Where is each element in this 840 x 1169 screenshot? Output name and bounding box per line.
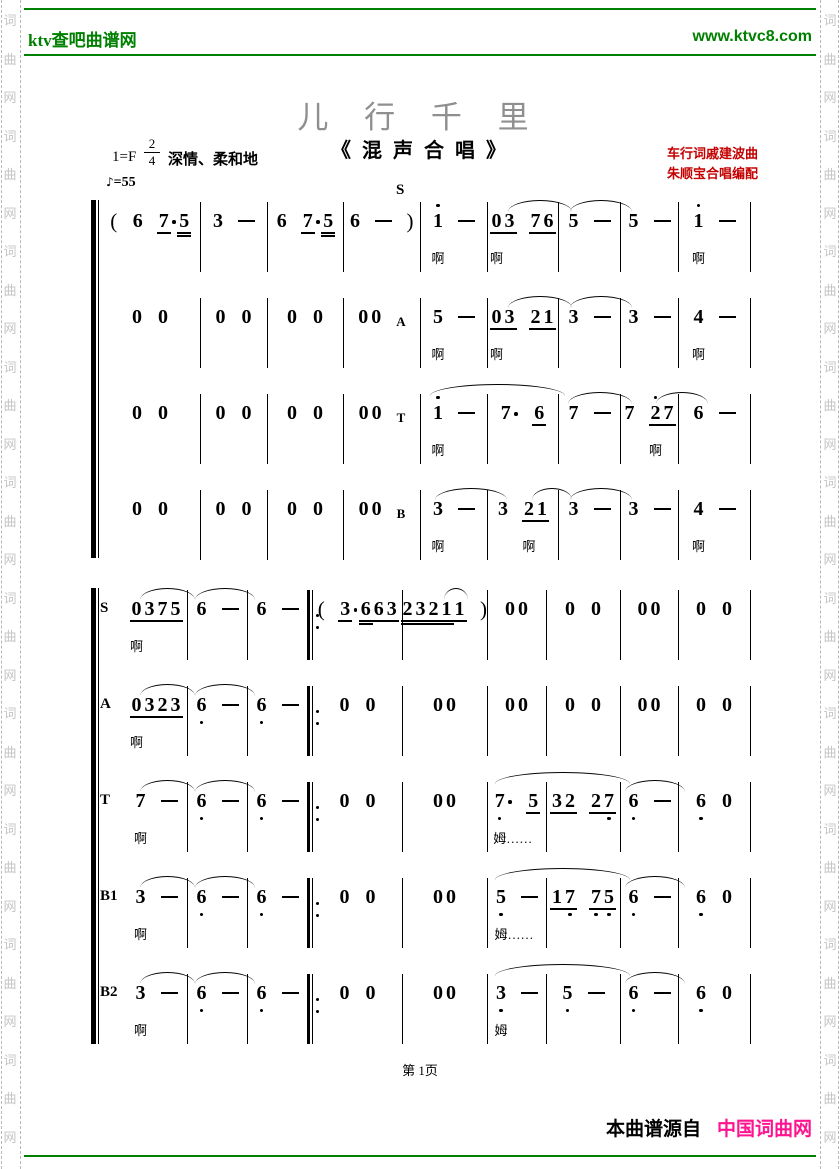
note-token: 7: [603, 790, 615, 812]
lyric: 姆……: [493, 828, 532, 847]
note-group: [718, 306, 736, 318]
measure: 7啊: [125, 778, 187, 874]
measure: 6): [343, 198, 420, 294]
voice-row: B23啊6600003姆5660: [100, 970, 762, 1066]
note-group: [238, 210, 256, 222]
dash-line: [654, 896, 671, 898]
lyric: 啊: [432, 344, 445, 363]
note-group: 6: [195, 790, 208, 812]
dash-line: [594, 508, 611, 510]
note-group: 76: [529, 210, 555, 232]
note-group: [281, 982, 299, 994]
measure: 1啊: [420, 198, 487, 294]
note-group: [160, 886, 178, 898]
header-green-rule: [24, 54, 816, 56]
measure: 0375啊: [125, 586, 187, 682]
note-token: 6: [196, 598, 208, 620]
note-token: 0: [339, 886, 351, 908]
note-group: 75: [301, 210, 335, 232]
underline-sixteenth: [414, 623, 428, 625]
octave-dot-low: [260, 1009, 263, 1012]
note-token: 7: [135, 790, 147, 812]
octave-dot-low: [699, 913, 702, 916]
parenthesis: (: [317, 598, 325, 620]
note-group: [160, 982, 178, 994]
note-token: 3: [135, 886, 147, 908]
measure: 675: [267, 198, 343, 294]
note-group: 6: [695, 982, 708, 1004]
note-group: 6: [195, 886, 208, 908]
watermark-char: 词: [2, 233, 18, 272]
note-token: 0: [650, 694, 662, 716]
note-group: 6: [349, 210, 362, 232]
measure: 60: [678, 970, 750, 1066]
dash-line: [238, 220, 255, 222]
note-group: 00: [357, 306, 383, 328]
measure: 00B: [343, 486, 420, 582]
voice-row: 00000000T1啊767727啊6: [100, 390, 762, 486]
note-group: 0: [721, 886, 734, 908]
note-group: 00: [636, 694, 662, 716]
measure: 5: [558, 198, 620, 294]
measure: 6: [247, 586, 307, 682]
note-group: [718, 210, 736, 222]
note-token: 6: [276, 210, 288, 232]
underline-eighth: [602, 812, 616, 814]
note-token: 5: [562, 982, 574, 1004]
note-group: 0: [721, 694, 734, 716]
note-token: 0: [695, 694, 707, 716]
source-site-link[interactable]: 中国词曲网: [717, 1119, 812, 1140]
underline-eighth: [490, 232, 504, 234]
lyric: 啊: [649, 440, 662, 459]
voice-row: B13啊6600005姆……1775660: [100, 874, 762, 970]
dash-line: [222, 704, 239, 706]
note-group: 0: [564, 694, 577, 716]
underline-eighth: [550, 908, 564, 910]
note-token: 6: [196, 886, 208, 908]
measure: 3姆: [487, 970, 546, 1066]
underline-eighth: [529, 328, 543, 330]
key-signature: 1=F: [112, 149, 136, 166]
note-group: 6: [695, 790, 708, 812]
measure: 00: [313, 682, 402, 778]
note-token: 3: [504, 210, 516, 232]
note-group: 27啊: [649, 402, 675, 424]
note-group: [593, 498, 611, 510]
note-token: 0: [215, 402, 227, 424]
note-group: 0: [721, 790, 734, 812]
system: S(67536756)1啊03啊76551啊00000000A5啊03啊2133…: [100, 198, 762, 582]
note-token: 6: [256, 790, 268, 812]
note-group: 5: [567, 210, 580, 232]
note-token: 0: [564, 694, 576, 716]
note-token: 0: [371, 402, 383, 424]
note-group: [281, 790, 299, 802]
note-token: 0: [370, 306, 382, 328]
note-token: 0: [157, 498, 169, 520]
note-token: 3: [551, 790, 563, 812]
note-token: 0: [365, 694, 377, 716]
underline-eighth: [385, 620, 399, 622]
watermark-char: 曲: [2, 965, 18, 1004]
measure: 00: [200, 390, 267, 486]
note-group: 5啊: [432, 306, 445, 328]
voice-row: T7啊6600007姆……53227660: [100, 778, 762, 874]
note-token: 6: [256, 694, 268, 716]
watermark-char: 网: [2, 1119, 18, 1158]
note-group: 5: [527, 790, 540, 812]
note-token: 6: [256, 982, 268, 1004]
measure: 00: [267, 390, 343, 486]
note-token: 0: [721, 694, 733, 716]
note-group: (: [109, 210, 118, 232]
time-signature-bottom: 4: [144, 153, 160, 169]
note-group: 27: [590, 790, 616, 812]
note-group: [718, 498, 736, 510]
note-token: 0: [157, 306, 169, 328]
octave-dot-high: [697, 204, 700, 207]
right-outer-dashed-rule: [838, 0, 839, 1169]
note-group: 0: [695, 694, 708, 716]
watermark-char: 词: [2, 926, 18, 965]
underline-eighth: [157, 232, 171, 234]
note-group: 3: [627, 498, 640, 520]
underline-eighth: [130, 620, 144, 622]
note-token: 6: [695, 790, 707, 812]
note-group: 4啊: [692, 498, 705, 520]
note-group: [375, 210, 393, 222]
site-name[interactable]: ktv查吧曲谱网: [28, 26, 137, 51]
underline-eighth: [177, 232, 191, 234]
note-group: 3: [627, 306, 640, 328]
note-token: 0: [339, 982, 351, 1004]
song-title: 儿 行 千 里: [0, 92, 840, 137]
measure: 3: [558, 294, 620, 390]
measure: 6: [247, 874, 307, 970]
watermark-char: 词: [2, 580, 18, 619]
note-group: [653, 498, 671, 510]
note-token: 0: [590, 598, 602, 620]
note-token: 0: [432, 886, 444, 908]
note-group: 0: [338, 790, 351, 812]
underline-eighth: [589, 812, 603, 814]
lyric: 啊: [134, 828, 147, 847]
watermark-char: 曲: [822, 849, 838, 888]
note-token: A: [396, 311, 405, 333]
augmentation-dot: [172, 220, 176, 224]
inline-voice-label: A: [396, 306, 406, 333]
note-token: 7: [494, 790, 506, 812]
watermark-char: 网: [822, 1003, 838, 1042]
dash-line: [719, 316, 736, 318]
note-token: 6: [196, 790, 208, 812]
underline-eighth: [338, 620, 352, 622]
augmentation-dot: [316, 220, 320, 224]
note-group: 0: [240, 306, 253, 328]
note-group: 00: [357, 498, 383, 520]
watermark-char: 词: [2, 811, 18, 850]
note-group: 3: [567, 498, 580, 520]
lyric: 啊: [692, 536, 705, 555]
note-token: 0: [721, 598, 733, 620]
measure: 4啊: [678, 294, 750, 390]
source-attribution: 本曲谱源自中国词曲网: [606, 1114, 812, 1141]
note-token: 0: [312, 402, 324, 424]
voice-label: T: [100, 792, 110, 809]
measure: 00: [100, 390, 200, 486]
note-group: 3姆: [495, 982, 508, 1004]
measure: 1啊: [678, 198, 750, 294]
watermark-char: 词: [822, 349, 838, 388]
underline-eighth: [440, 620, 454, 622]
measure: 03啊76: [487, 198, 558, 294]
dash-line: [521, 992, 538, 994]
watermark-char: 曲: [2, 387, 18, 426]
note-group: [587, 982, 605, 994]
barline: [750, 298, 751, 368]
underline-eighth: [372, 620, 386, 622]
voice-row: (67536756)1啊03啊76551啊: [100, 198, 762, 294]
note-group: 0: [338, 982, 351, 1004]
watermark-char: 词: [822, 233, 838, 272]
note-group: 6: [255, 982, 268, 1004]
underline-eighth: [156, 716, 170, 718]
measure: 5姆……: [487, 874, 546, 970]
note-token: 0: [131, 598, 143, 620]
watermark-char: 网: [822, 772, 838, 811]
voice-label: B2: [100, 984, 118, 1001]
note-token: 0: [504, 694, 516, 716]
note-token: 1: [693, 210, 705, 232]
note-token: 0: [432, 790, 444, 812]
watermark-char: 词: [822, 695, 838, 734]
note-group: 00: [432, 982, 458, 1004]
note-group: 17: [551, 886, 577, 908]
note-token: 0: [695, 598, 707, 620]
measure: 0323啊: [125, 682, 187, 778]
note-token: 0: [504, 598, 516, 620]
note-token: 7: [564, 886, 576, 908]
octave-dot-low: [632, 817, 635, 820]
note-group: 6: [255, 790, 268, 812]
note-token: 3: [628, 306, 640, 328]
underline-eighth: [169, 620, 183, 622]
measure: 00: [313, 778, 402, 874]
system-brace: [91, 588, 96, 1044]
note-group: 0: [131, 498, 144, 520]
lyric: 啊: [432, 440, 445, 459]
note-token: 7: [302, 210, 314, 232]
note-token: 2: [428, 598, 440, 620]
note-group: 0: [590, 694, 603, 716]
lyric: 啊: [134, 1020, 147, 1039]
note-group: 0: [214, 306, 227, 328]
watermark-char: 词: [2, 349, 18, 388]
watermark-char: 曲: [822, 41, 838, 80]
watermark-char: 词: [822, 811, 838, 850]
note-group: 00: [432, 790, 458, 812]
note-group: 0: [721, 982, 734, 1004]
note-group: 6: [255, 598, 268, 620]
note-group: [160, 790, 178, 802]
note-group: 6: [533, 402, 546, 424]
note-group: 0: [131, 402, 144, 424]
note-token: 0: [637, 694, 649, 716]
measure: 7: [558, 390, 620, 486]
note-group: 03啊: [490, 210, 516, 232]
lyric: 姆: [495, 1020, 508, 1039]
lyric: 姆……: [495, 924, 534, 943]
watermark-char: 网: [2, 310, 18, 349]
measure: 00: [402, 682, 487, 778]
note-token: 6: [533, 402, 545, 424]
note-group: 0: [312, 498, 325, 520]
measure: 5: [546, 970, 620, 1066]
dash-line: [654, 220, 671, 222]
note-group: 1啊: [432, 402, 445, 424]
credit-arranger: 朱顺宝合唱编配: [667, 164, 758, 184]
credit-lyricist-composer: 车行词戚建波曲: [667, 144, 758, 164]
note-token: 0: [365, 886, 377, 908]
watermark-char: 曲: [2, 849, 18, 888]
note-token: 6: [196, 982, 208, 1004]
source-prefix: 本曲谱源自: [606, 1119, 701, 1140]
barline: [750, 490, 751, 560]
lyric: 啊: [432, 248, 445, 267]
note-token: 7: [663, 402, 675, 424]
lyric: 啊: [523, 536, 536, 555]
octave-dot-low: [499, 913, 502, 916]
note-token: 6: [695, 982, 707, 1004]
note-group: 75: [157, 210, 191, 232]
note-token: 4: [693, 306, 705, 328]
octave-dot-low: [566, 1009, 569, 1012]
note-group: 03啊: [490, 306, 516, 328]
octave-dot-low: [499, 1009, 502, 1012]
note-token: 0: [286, 306, 298, 328]
measure: 3: [200, 198, 267, 294]
note-group: [653, 982, 671, 994]
note-group: 3: [567, 306, 580, 328]
measure: 5: [620, 198, 678, 294]
note-token: 0: [286, 402, 298, 424]
note-group: 6: [195, 694, 208, 716]
site-url[interactable]: www.ktvc8.com: [693, 28, 812, 46]
note-token: 3: [144, 694, 156, 716]
note-group: 00: [504, 598, 530, 620]
underline-eighth: [542, 232, 556, 234]
lyric: 啊: [490, 248, 503, 267]
measure: 00: [267, 294, 343, 390]
note-group: 7啊: [134, 790, 147, 812]
note-group: [458, 402, 476, 414]
watermark-right: 词曲网词曲网词曲网词曲网词曲网词曲网词曲网词曲网词曲网词曲网: [822, 2, 838, 1157]
note-token: 0: [432, 982, 444, 1004]
dash-line: [719, 508, 736, 510]
note-token: 3: [415, 598, 427, 620]
note-group: 0: [338, 886, 351, 908]
watermark-char: 词: [2, 695, 18, 734]
measure: 7姆……5: [487, 778, 546, 874]
system-brace-thin: [98, 200, 99, 558]
measure: 00: [100, 294, 200, 390]
measure: 00: [267, 486, 343, 582]
note-token: 0: [365, 790, 377, 812]
inline-voice-label: B: [396, 498, 406, 525]
measure: 00: [402, 874, 487, 970]
note-token: 6: [256, 886, 268, 908]
note-token: 1: [432, 210, 444, 232]
underline-eighth: [550, 812, 564, 814]
octave-dot-low: [260, 913, 263, 916]
voice-row: 00000000B3啊321啊334啊: [100, 486, 762, 582]
note-token: 0: [215, 498, 227, 520]
note-group: [281, 598, 299, 610]
note-group: 0375啊: [130, 598, 182, 620]
measure: 5啊: [420, 294, 487, 390]
underline-sixteenth: [321, 235, 335, 237]
note-token: 5: [178, 210, 190, 232]
dash-line: [719, 220, 736, 222]
lyric: 啊: [692, 248, 705, 267]
note-token: 0: [637, 598, 649, 620]
watermark-char: 曲: [822, 272, 838, 311]
note-group: 6: [275, 210, 288, 232]
note-token: 0: [445, 982, 457, 1004]
note-token: 6: [693, 402, 705, 424]
voice-row: A0323啊66000000000000: [100, 682, 762, 778]
note-group: 21啊: [523, 498, 549, 520]
note-token: 0: [445, 694, 457, 716]
note-token: 3: [568, 306, 580, 328]
inline-voice-label: T: [396, 402, 406, 429]
augmentation-dot: [508, 800, 512, 804]
system-brace: [91, 200, 96, 558]
note-group: 0: [364, 886, 377, 908]
measure: 1775: [546, 874, 620, 970]
note-group: [458, 498, 476, 510]
lyric: 啊: [130, 732, 143, 751]
note-group: [221, 886, 239, 898]
note-group: [458, 210, 476, 222]
note-group: 0: [214, 402, 227, 424]
octave-dot-low: [200, 817, 203, 820]
watermark-char: 网: [2, 1003, 18, 1042]
watermark-char: 曲: [822, 965, 838, 1004]
barline: [750, 686, 751, 756]
note-group: [653, 886, 671, 898]
dash-line: [594, 220, 611, 222]
dash-line: [458, 220, 475, 222]
note-token: 6: [349, 210, 361, 232]
tempo-marking: ♪=55: [106, 175, 136, 191]
measure: 6: [187, 970, 247, 1066]
note-group: 0: [157, 402, 170, 424]
note-group: 0: [214, 498, 227, 520]
measure: 6: [620, 778, 678, 874]
measure: 6: [620, 970, 678, 1066]
measure: 00: [402, 970, 487, 1066]
measure: (675: [100, 198, 200, 294]
measure: 00: [678, 586, 750, 682]
note-token: 0: [131, 498, 143, 520]
barline: [750, 202, 751, 272]
watermark-char: 曲: [822, 734, 838, 773]
measure: 76: [487, 390, 558, 486]
octave-dot-low: [632, 1009, 635, 1012]
measure: 3: [620, 486, 678, 582]
